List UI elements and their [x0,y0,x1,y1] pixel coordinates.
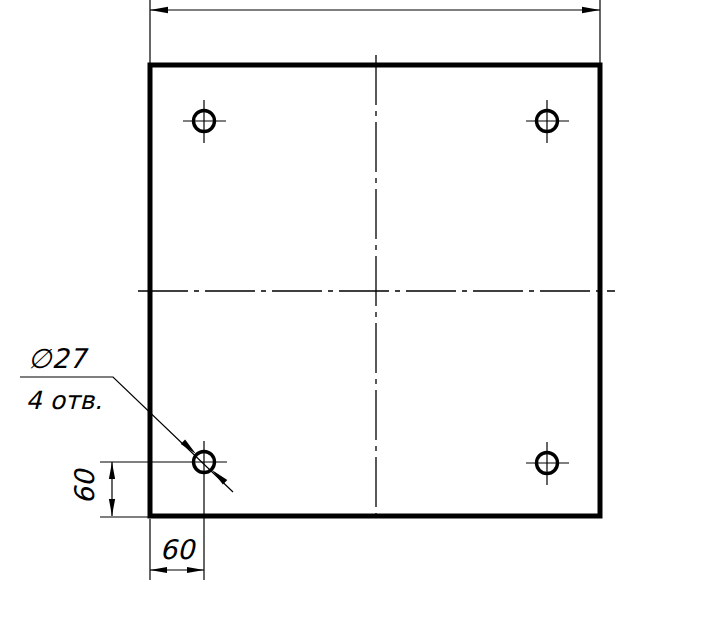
top-dimension [150,0,600,63]
arrowhead-left-icon [150,567,167,573]
hole-top-left [183,100,226,143]
vertical-offset-value: 60 [69,467,100,504]
horizontal-offset-dimension: 60 [150,519,204,580]
leader-arrowhead-upper-icon [181,439,196,454]
callout-count-label: 4 отв. [26,386,102,415]
hole-bottom-right [526,442,569,485]
hole-callout: ∅27 4 отв. [20,343,233,492]
vertical-offset-dimension: 60 [69,462,148,517]
horizontal-offset-value: 60 [160,534,197,565]
arrowhead-down-icon [109,499,115,516]
arrowhead-right-icon [187,567,204,573]
callout-diameter-label: ∅27 [28,343,89,374]
technical-drawing: ∅27 4 отв. 60 60 [0,0,713,631]
arrowhead-up-icon [109,462,115,479]
arrowhead-right-icon [582,7,600,13]
hole-top-right [526,100,569,143]
arrowhead-left-icon [150,7,168,13]
leader-arrowhead-lower-icon [212,470,227,485]
drawing-canvas: ∅27 4 отв. 60 60 [0,0,713,631]
